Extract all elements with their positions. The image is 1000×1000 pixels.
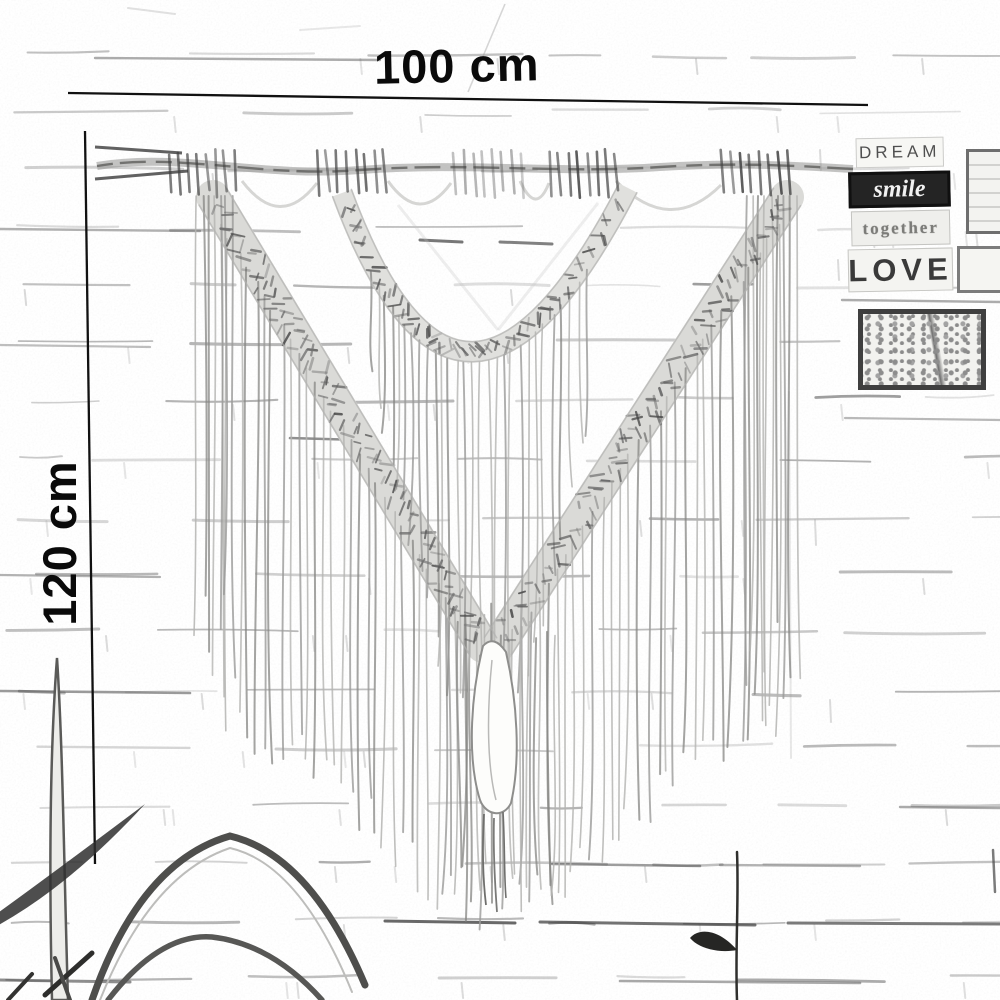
wall-sign-together: together (851, 209, 951, 246)
macrame-dimension-sketch: 100 cm 120 cm DREAM smile together LOVE (0, 0, 1000, 1000)
height-dimension-label: 120 cm (36, 452, 96, 634)
wall-sign-love: LOVE (848, 247, 954, 292)
sprout-stem (736, 852, 737, 1000)
partial-frame-top-right (966, 149, 1000, 234)
partial-frame-mid-right (957, 246, 1000, 293)
width-dimension-label: 100 cm (374, 40, 540, 90)
picture-frame (858, 309, 986, 390)
wall-sign-dream: DREAM (855, 137, 944, 169)
wall-sign-smile: smile (848, 170, 951, 208)
